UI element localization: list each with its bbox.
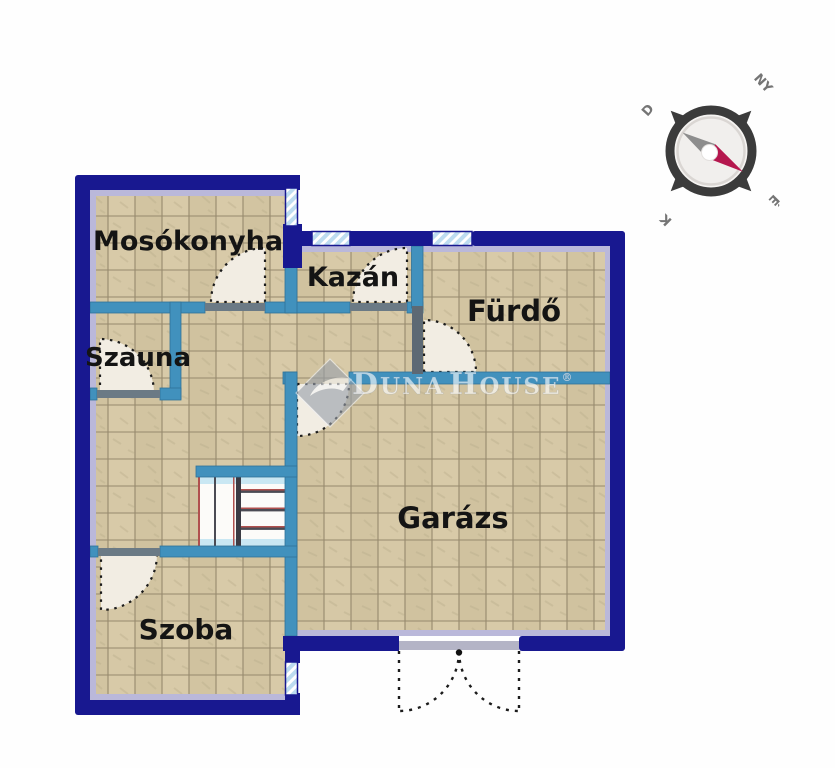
staircase: [198, 477, 285, 546]
compass-hub: [702, 145, 718, 161]
compass-label-west: NY: [750, 71, 775, 97]
furdo-partition: [412, 306, 423, 374]
door-leaf-szauna: [97, 390, 160, 398]
floorplan-image: DUNAHOUSE® Mosókonyha Kazán Fürdő Szauna…: [0, 0, 835, 768]
room-label-garazs: Garázs: [397, 501, 508, 535]
room-label-mosokonyha: Mosókonyha: [93, 226, 283, 257]
floorplan-svg: DUNAHOUSE® Mosókonyha Kazán Fürdő Szauna…: [0, 0, 835, 768]
window-szoba: [286, 662, 298, 695]
room-label-szauna: Szauna: [85, 343, 191, 373]
window-kazan: [312, 232, 350, 246]
window-mosokonyha: [286, 188, 298, 226]
compass-label-north: É: [765, 191, 783, 209]
compass-label-south: D: [639, 101, 658, 119]
compass-label-east: K: [657, 210, 675, 228]
window-furdo: [432, 232, 472, 246]
door-leaf-mosokonyha: [205, 303, 265, 311]
stair-divider: [236, 477, 241, 546]
door-leaf-kazan: [350, 303, 407, 311]
garage-door-pivot: [456, 649, 462, 655]
compass-rose: NY D K É: [639, 71, 782, 228]
garage-door: [399, 641, 519, 711]
watermark-text: DUNAHOUSE®: [352, 367, 575, 402]
room-label-furdo: Fürdő: [467, 294, 561, 328]
stair-edge-line: [198, 477, 200, 546]
room-label-kazan: Kazán: [307, 262, 399, 293]
garage-door-sill: [399, 641, 519, 650]
door-leaf-szoba: [98, 548, 160, 556]
room-label-szoba: Szoba: [139, 613, 234, 646]
